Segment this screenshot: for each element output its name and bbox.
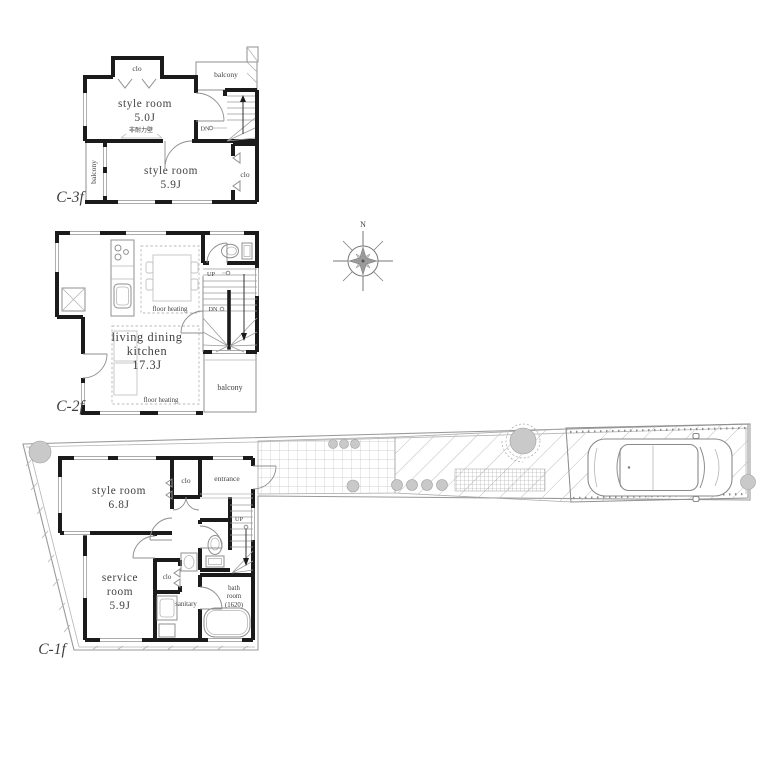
floor1-label: C-1f [38,641,68,658]
floor1-service-line2: room [107,586,133,598]
stepping-stone [437,480,448,491]
floor1-service-line1: service [102,572,138,584]
floor3-room-b-name: style room [144,165,198,177]
floor1-closet-small-label: clo [163,574,172,581]
floor3-wall-note: 非耐力壁 [129,126,153,134]
floor1-bath-line1: bath [228,585,240,592]
floor2-balcony-label: balcony [217,383,242,392]
shrub [351,440,360,449]
floor3-room-a-size: 5.0J [135,112,156,124]
floor3-room-a-name: style room [118,98,172,110]
floor2-ldk-line2: kitchen [127,344,167,358]
floor1-room-name: style room [92,485,146,497]
floor2-ldk-line1: living dining [112,330,183,344]
floor-plan-drawing: N balcony balcony [0,0,768,768]
drain-grate [455,469,545,491]
floor3-label: C-3f [56,189,86,206]
tree [510,428,536,454]
shrub [329,440,338,449]
floor1-bath-line3: (1620) [225,602,243,609]
floor2-ldk-line3: 17.3J [132,358,161,372]
floor1-room-size: 6.8J [109,499,130,511]
floor1-closet-top-label: clo [181,476,190,485]
stepping-stone [392,480,403,491]
page-background [0,0,768,768]
floor-plan-page: N balcony balcony [0,0,768,768]
floor2-label: C-2f [56,398,86,415]
floor3-dn-label: DN [201,126,210,133]
car-mirror [693,497,699,502]
floor1-entrance-label: entrance [214,474,240,483]
compass-north-label: N [360,220,366,229]
floor2-floor-heating-lower: floor heating [144,397,180,404]
floor3-closet-right-label: clo [240,170,249,179]
shrub [741,475,756,490]
floor3-balcony-left-label: balcony [89,160,98,184]
shrub [347,480,359,492]
floor1-service-line3: 5.9J [110,600,131,612]
floor2-up-label: UP [207,271,215,278]
floor1-sanitary-label: sanitary [175,601,197,608]
floor1-bath-line2: room [227,593,242,600]
floor3-room-b-size: 5.9J [161,179,182,191]
shrub [29,441,51,463]
floor3-balcony-top-label: balcony [214,70,238,79]
stepping-stone [422,480,433,491]
shrub [340,440,349,449]
stepping-stone [407,480,418,491]
car [588,434,732,502]
floor3-closet-top-label: clo [132,64,141,73]
floor2-floor-heating-upper: floor heating [153,306,189,313]
floor2-dn-label: DN [209,306,218,313]
floor1-up-label: UP [235,516,243,523]
car-mirror [693,434,699,439]
